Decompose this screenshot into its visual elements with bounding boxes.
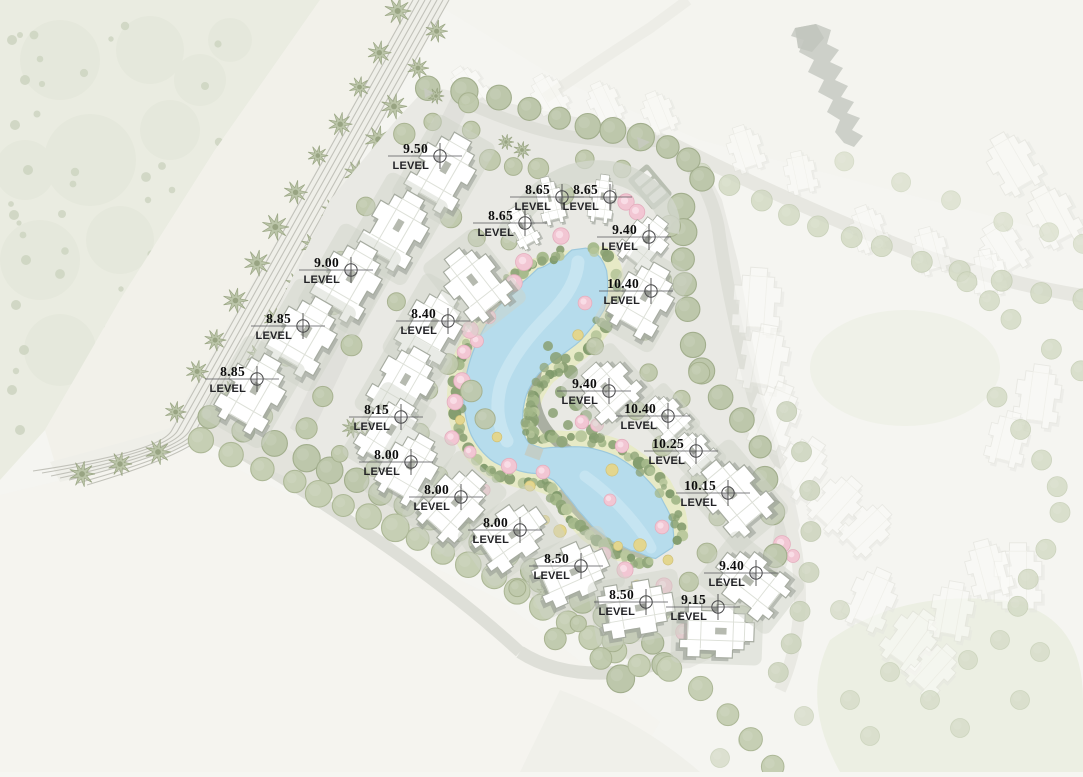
svg-text:LEVEL: LEVEL — [649, 455, 686, 467]
svg-text:LEVEL: LEVEL — [393, 160, 430, 172]
svg-text:LEVEL: LEVEL — [354, 421, 391, 433]
svg-text:LEVEL: LEVEL — [478, 227, 515, 239]
svg-text:8.00: 8.00 — [374, 447, 399, 462]
svg-text:8.00: 8.00 — [483, 515, 508, 530]
svg-text:LEVEL: LEVEL — [604, 295, 641, 307]
svg-text:LEVEL: LEVEL — [562, 395, 599, 407]
svg-text:LEVEL: LEVEL — [401, 325, 438, 337]
svg-text:LEVEL: LEVEL — [563, 201, 600, 213]
svg-text:LEVEL: LEVEL — [602, 241, 639, 253]
svg-text:9.15: 9.15 — [681, 592, 706, 607]
svg-text:8.65: 8.65 — [573, 182, 598, 197]
svg-text:LEVEL: LEVEL — [210, 383, 247, 395]
svg-text:LEVEL: LEVEL — [304, 274, 341, 286]
svg-text:LEVEL: LEVEL — [709, 577, 746, 589]
svg-text:9.50: 9.50 — [403, 141, 428, 156]
svg-text:8.00: 8.00 — [424, 482, 449, 497]
svg-text:8.15: 8.15 — [364, 402, 389, 417]
svg-text:9.40: 9.40 — [572, 376, 597, 391]
svg-text:LEVEL: LEVEL — [414, 501, 451, 513]
svg-text:8.65: 8.65 — [488, 208, 513, 223]
svg-text:LEVEL: LEVEL — [515, 201, 552, 213]
svg-text:LEVEL: LEVEL — [473, 534, 510, 546]
svg-text:8.50: 8.50 — [609, 587, 634, 602]
svg-text:8.50: 8.50 — [544, 551, 569, 566]
svg-text:9.40: 9.40 — [612, 222, 637, 237]
svg-text:8.65: 8.65 — [525, 182, 550, 197]
svg-text:LEVEL: LEVEL — [534, 570, 571, 582]
svg-text:9.00: 9.00 — [314, 255, 339, 270]
svg-text:8.85: 8.85 — [220, 364, 245, 379]
svg-text:LEVEL: LEVEL — [256, 330, 293, 342]
svg-text:9.40: 9.40 — [719, 558, 744, 573]
svg-text:LEVEL: LEVEL — [681, 497, 718, 509]
svg-text:10.25: 10.25 — [652, 436, 684, 451]
svg-text:LEVEL: LEVEL — [599, 606, 636, 618]
svg-text:8.85: 8.85 — [266, 311, 291, 326]
svg-text:10.15: 10.15 — [684, 478, 716, 493]
svg-text:8.40: 8.40 — [411, 306, 436, 321]
svg-text:10.40: 10.40 — [607, 276, 639, 291]
svg-text:LEVEL: LEVEL — [364, 466, 401, 478]
svg-text:LEVEL: LEVEL — [621, 420, 658, 432]
svg-text:10.40: 10.40 — [624, 401, 656, 416]
svg-text:LEVEL: LEVEL — [671, 611, 708, 623]
